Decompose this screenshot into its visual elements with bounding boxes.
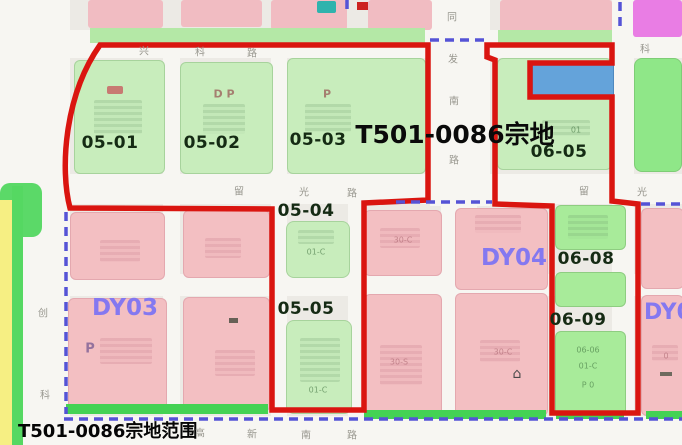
zone-label-dy04: DY04 [481,245,547,271]
parcel-label-06-09: 06-09 [550,310,607,330]
road-label-char: 高 [195,425,205,440]
road-label-char: 科 [640,41,650,56]
road-label-char: 路 [347,185,357,200]
fineprint-text: 01-C [579,362,598,371]
road-label-char: 同 [447,9,457,24]
boundary-overlay [0,0,682,445]
fineprint-text: 30-S [390,358,408,367]
planning-map: 05-01 05-02 05-03 05-04 05-05 06-05 06-0… [0,0,682,445]
zone-label-dy05: DY05 [644,300,682,325]
road-label-char: 兴 [139,43,149,58]
fineprint-text: 01-C [307,248,326,257]
fineprint-text: 0 [663,352,668,361]
parcel-label-06-08: 06-08 [558,249,615,269]
parcel-boundary-red-east [487,45,638,413]
parcel-label-05-01: 05-01 [82,133,139,153]
fineprint-text: 30-C [394,236,413,245]
fineprint-text: 01 [571,126,581,135]
fineprint-text: 06-06 [576,346,599,355]
area-title-label: T501-0086宗地 [355,115,554,151]
road-label-char: 科 [40,387,50,402]
road-label-char: 南 [449,93,459,108]
parking-mark: P [85,342,95,357]
fineprint-text: D P [213,88,234,101]
zone-label-dy03: DY03 [92,295,158,321]
road-label-char: 新 [247,426,257,441]
road-label-char: 路 [347,427,357,442]
parcel-label-05-02: 05-02 [184,133,241,153]
road-label-char: 科 [195,44,205,59]
parcel-label-05-04: 05-04 [278,201,335,221]
road-label-char: 光 [637,184,647,199]
map-caption: T501-0086宗地范围 [18,417,197,443]
fineprint-text: 30-C [494,348,513,357]
road-label-char: 路 [449,152,459,167]
road-label-char: 留 [234,183,244,198]
road-label-char: 光 [299,184,309,199]
road-label-char: 留 [579,183,589,198]
parcel-label-05-03: 05-03 [290,130,347,150]
parcel-boundary-red-west [65,45,428,410]
fineprint-text: P 0 [582,381,594,390]
road-label-char: 南 [301,427,311,442]
parcel-label-05-05: 05-05 [278,299,335,319]
road-label-char: 发 [448,51,458,66]
road-label-char: 路 [247,45,257,60]
fineprint-text: 01-C [309,386,328,395]
parking-mark: P [323,88,331,101]
house-icon: ⌂ [513,366,522,382]
road-label-char: 创 [38,305,48,320]
